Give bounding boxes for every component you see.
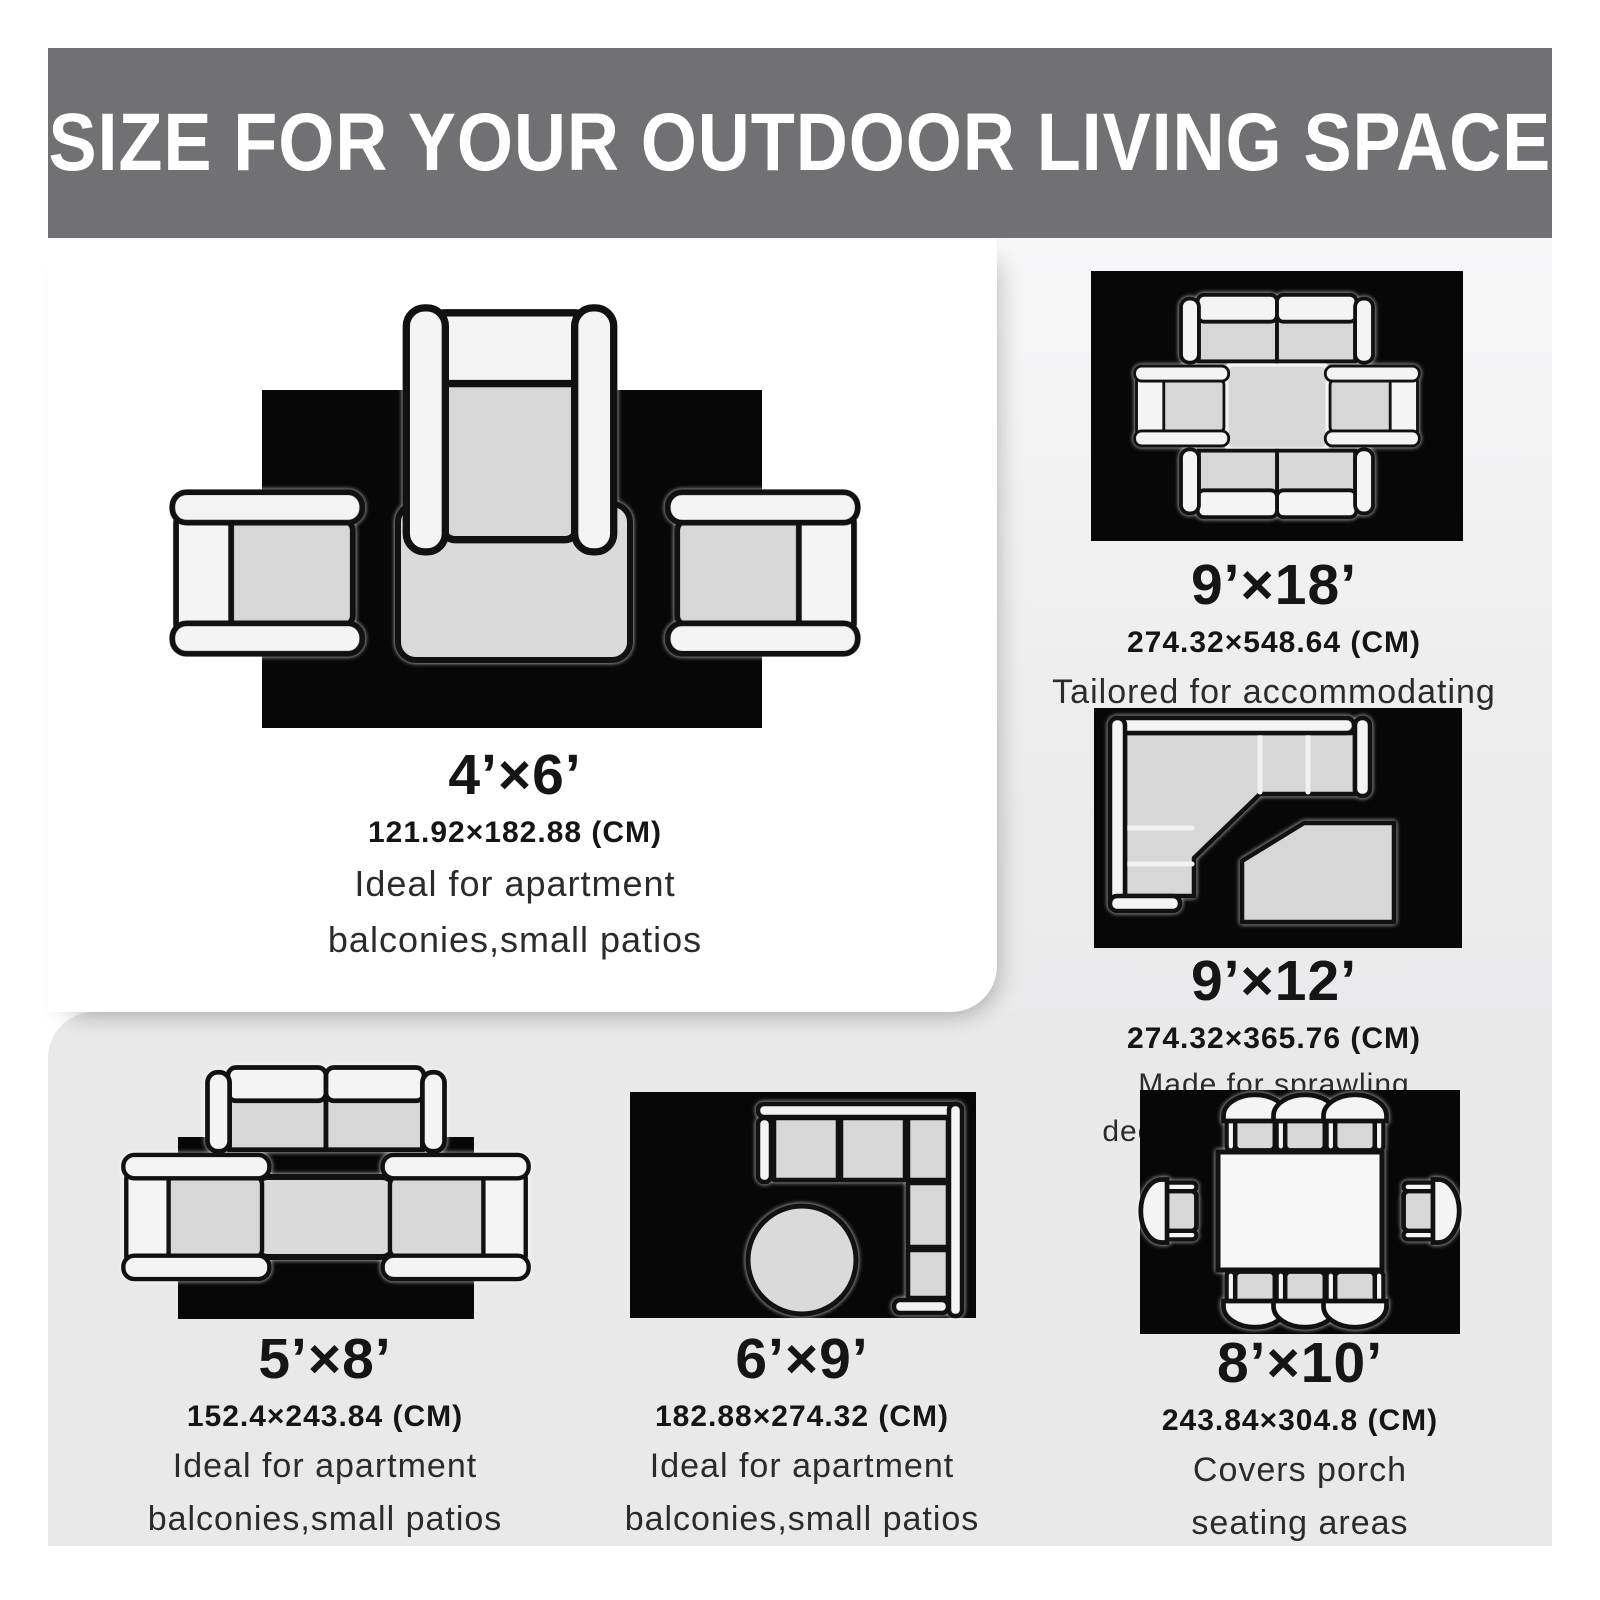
page-title: SIZE FOR YOUR OUTDOOR LIVING SPACE bbox=[49, 96, 1552, 190]
section-8x10: 8’×10’ 243.84×304.8 (CM) Covers porch se… bbox=[990, 1330, 1600, 1549]
cm-label-4x6: 121.92×182.88 (CM) bbox=[205, 816, 825, 850]
rug-diagram-6x9 bbox=[622, 1070, 1002, 1330]
size-label-4x6: 4’×6’ bbox=[205, 742, 825, 808]
rug-diagram-4x6 bbox=[150, 258, 870, 733]
rug-size-infographic: SIZE FOR YOUR OUTDOOR LIVING SPACE 4’×6’… bbox=[0, 0, 1600, 1600]
section-4x6: 4’×6’ 121.92×182.88 (CM) Ideal for apart… bbox=[205, 742, 825, 968]
dining-table-icon bbox=[1218, 1152, 1382, 1270]
rug-diagram-9x12 bbox=[1092, 706, 1464, 950]
cm-label-8x10: 243.84×304.8 (CM) bbox=[990, 1404, 1600, 1438]
cm-label-9x18: 274.32×548.64 (CM) bbox=[964, 626, 1584, 660]
header-banner: SIZE FOR YOUR OUTDOOR LIVING SPACE bbox=[48, 48, 1552, 238]
rug-diagram-5x8 bbox=[118, 1055, 538, 1345]
description-8x10: Covers porch seating areas bbox=[990, 1444, 1600, 1549]
size-label-9x18: 9’×18’ bbox=[964, 552, 1584, 618]
square-table-icon bbox=[1226, 364, 1328, 450]
round-table-icon bbox=[748, 1206, 856, 1314]
rug-diagram-9x18 bbox=[1088, 268, 1466, 544]
size-label-9x12: 9’×12’ bbox=[964, 948, 1584, 1014]
cm-label-9x12: 274.32×365.76 (CM) bbox=[964, 1022, 1584, 1056]
coffee-table-icon bbox=[256, 1177, 394, 1257]
size-label-8x10: 8’×10’ bbox=[990, 1330, 1600, 1396]
description-4x6: Ideal for apartment balconies,small pati… bbox=[205, 856, 825, 968]
rug-diagram-8x10 bbox=[1130, 1080, 1470, 1342]
